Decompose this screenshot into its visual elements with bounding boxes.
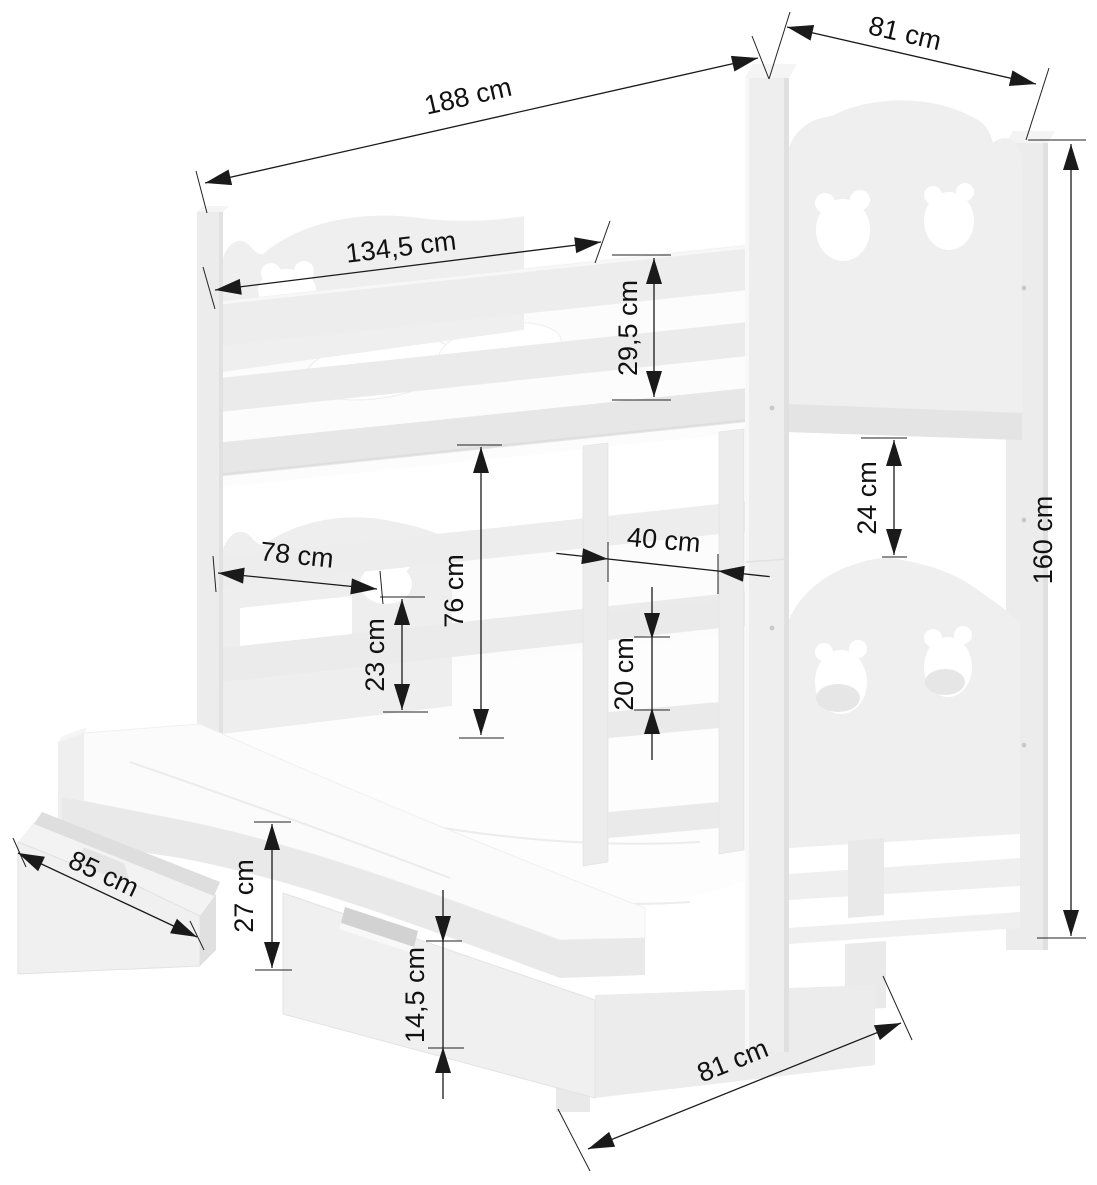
bear-cutout-upper-right: [924, 183, 974, 250]
dim-label-headboard-gap: 24 cm: [852, 461, 882, 535]
upper-end-panel-face: [788, 100, 1022, 440]
ladder-left-rail: [583, 443, 608, 866]
upper-end-panel: [788, 100, 1022, 440]
dim-label-top-depth: 81 cm: [866, 10, 944, 56]
bed-illustration: [18, 64, 1055, 1112]
bunk-bed-dimension-diagram: 188 cm 81 cm 134,5 cm 29,5 cm 78 cm 40 c…: [0, 0, 1097, 1185]
ladder-right-rail: [719, 429, 744, 854]
dim-label-ladder-width: 40 cm: [626, 522, 702, 558]
front-post-body: [745, 78, 789, 1052]
dim-label-rung-spacing: 20 cm: [609, 637, 639, 711]
lower-end-panel-face: [788, 558, 1020, 944]
panel-center-support: [848, 838, 884, 918]
rear-post-cap: [1006, 131, 1055, 143]
dim-label-drawer-front-height: 14,5 cm: [400, 947, 430, 1043]
dim-label-total-height: 160 cm: [1028, 496, 1058, 585]
left-post-cap: [197, 206, 229, 212]
left-post-shade: [219, 212, 223, 780]
trundle-frame-right: [595, 985, 875, 1098]
dimension-total-length: 188 cm: [205, 56, 758, 185]
dimension-top-depth: 81 cm: [787, 10, 1036, 86]
dim-label-total-length: 188 cm: [422, 72, 515, 121]
dim-label-guard-rail-height: 29,5 cm: [613, 280, 643, 376]
diagram-canvas: 188 cm 81 cm 134,5 cm 29,5 cm 78 cm 40 c…: [0, 0, 1097, 1185]
front-post-shade: [784, 78, 789, 1052]
dim-label-trundle-height: 27 cm: [229, 859, 259, 933]
top-bunk: [205, 216, 748, 488]
bear-cutout-lower-left: [815, 640, 867, 714]
bear-cutout-upper-left: [815, 190, 870, 261]
dim-label-lower-guard-height: 23 cm: [360, 618, 390, 692]
front-post-highlight: [745, 78, 749, 1052]
lower-end-panel: [788, 558, 1020, 1010]
dimension-headboard-gap: 24 cm: [852, 440, 902, 555]
dim-label-bunk-clearance: 76 cm: [439, 554, 469, 628]
